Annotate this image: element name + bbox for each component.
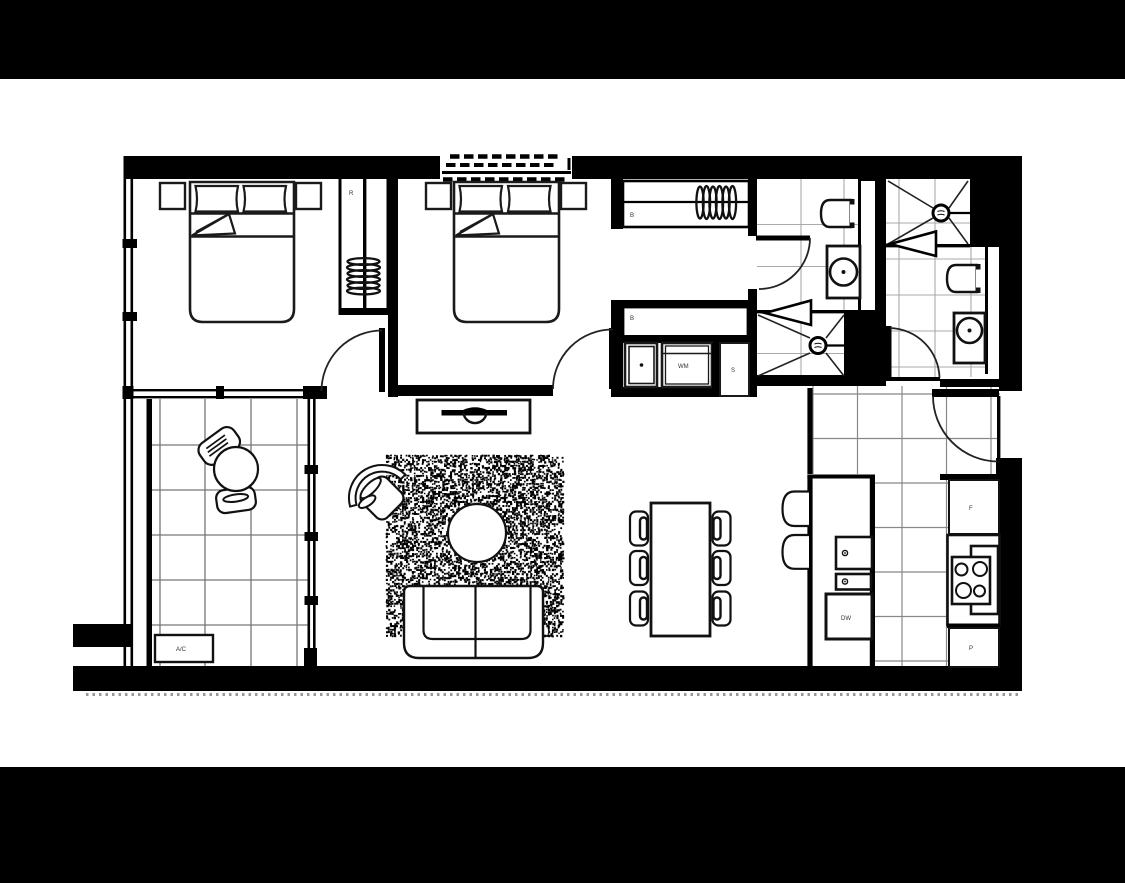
svg-text:A/C: A/C <box>176 647 187 653</box>
svg-text:R: R <box>349 191 354 197</box>
svg-text:DW: DW <box>841 616 851 622</box>
svg-text:F: F <box>969 506 973 512</box>
svg-text:B: B <box>630 213 634 219</box>
svg-text:WM: WM <box>678 364 689 370</box>
svg-text:S: S <box>731 368 735 374</box>
svg-text:B: B <box>630 316 634 322</box>
svg-text:P: P <box>969 646 973 652</box>
